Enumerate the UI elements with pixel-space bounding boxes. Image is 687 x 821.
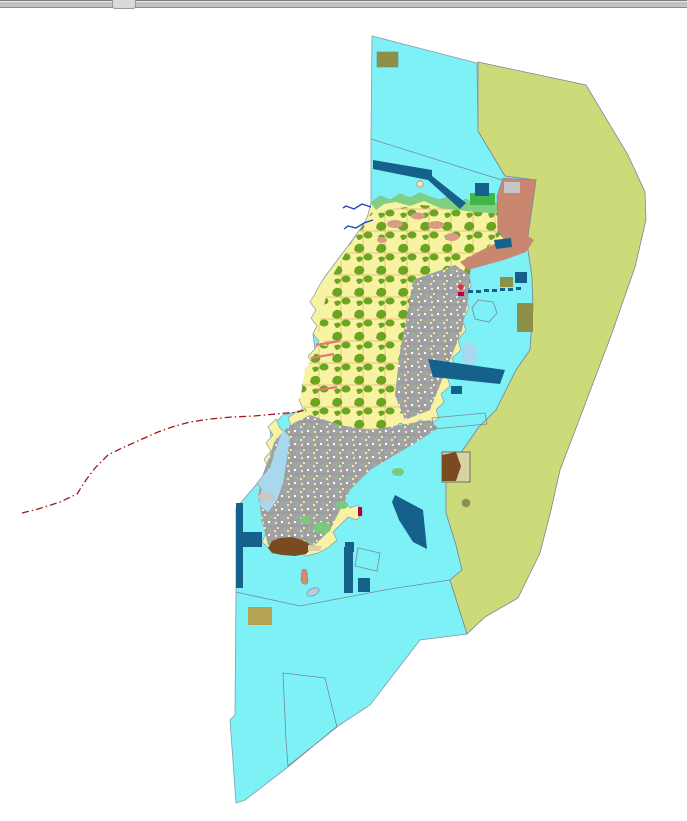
map-canvas[interactable] [0,0,687,821]
port-red-dot [458,284,464,290]
lighthouse-symbol [417,181,423,187]
breakwater-dash [484,289,489,292]
harbor-jetty-bar [344,547,353,593]
facility-block-south [248,607,272,625]
park-patch [336,501,348,509]
park-patch [300,516,310,524]
salmon-patch [428,221,444,229]
river-line [343,204,371,209]
park-patch [313,522,331,534]
magenta-mark [458,292,464,296]
map-window [0,0,687,821]
navy-block-east [515,272,527,283]
buoy-circle [462,499,470,507]
salmon-patch [377,237,387,243]
harbor-rect-coast [345,542,354,552]
breakwater-dash [492,289,497,292]
facility-block-east-large [517,303,533,332]
breakwater-dash [508,288,513,291]
salmon-patch [445,233,459,241]
harbor-square [358,578,370,592]
facility-block-north [377,52,398,67]
islet-salmon [301,569,308,584]
breakwater-dash [516,287,521,290]
tidal-flat-patch [258,493,274,502]
harbor-basin-rect [475,183,489,196]
breakwater-dash [476,290,481,293]
magenta-mark [358,507,362,516]
salmon-patch [411,213,425,220]
park-patch [392,468,404,476]
harbor-rect-small [451,386,462,394]
facility-block-east-small [500,277,513,287]
salmon-zone-inner-gray [504,182,520,193]
salmon-patch [387,220,403,228]
harbor-tee-arm [243,532,262,547]
reclaimed-land-tail [308,545,322,551]
breakwater-dash [468,290,473,293]
breakwater-dash [500,288,505,291]
harbor-tee-vertical [236,503,243,588]
